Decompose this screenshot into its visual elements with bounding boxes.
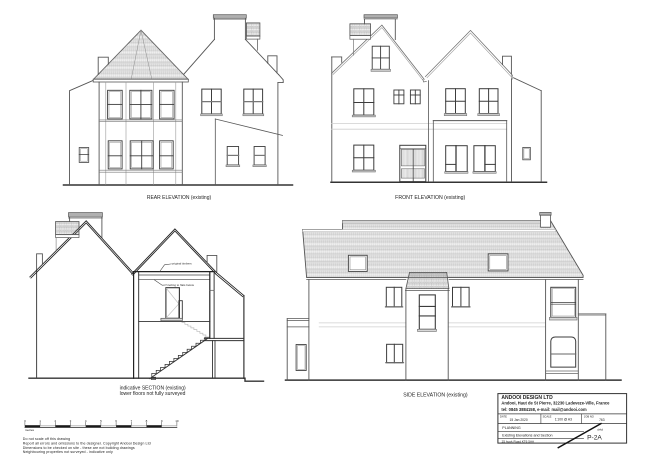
svg-text:P-2A: P-2A	[587, 435, 602, 442]
svg-text:chkd: chkd	[597, 427, 603, 431]
svg-text:Dimensions to be checked on si: Dimensions to be checked on site - these…	[23, 446, 135, 450]
svg-text:25 hook Road KT6 5AA: 25 hook Road KT6 5AA	[502, 439, 535, 443]
svg-text:original timbers: original timbers	[172, 262, 192, 266]
svg-text:Do not scale off this drawing: Do not scale off this drawing	[23, 437, 70, 441]
svg-text:Existing Elevations and Sectio: Existing Elevations and Section	[502, 433, 552, 437]
svg-text:ceiling to flats below: ceiling to flats below	[168, 283, 195, 287]
svg-text:metres: metres	[25, 428, 35, 432]
svg-text:DATE: DATE	[500, 415, 507, 419]
svg-text:lower floors not fully surveye: lower floors not fully surveyed	[120, 391, 186, 397]
svg-text:15 Jan 2020: 15 Jan 2020	[510, 418, 528, 422]
svg-text:SCALE: SCALE	[543, 415, 552, 419]
svg-text:Report all errors and omission: Report all errors and omissions to the d…	[23, 441, 151, 445]
svg-text:SIDE ELEVATION (existing): SIDE ELEVATION (existing)	[403, 392, 468, 398]
svg-text:Andooi, Haut de St Pierre, 322: Andooi, Haut de St Pierre, 32230 Ladevez…	[501, 400, 610, 405]
svg-text:763: 763	[599, 418, 605, 422]
svg-text:1:100 @ A3: 1:100 @ A3	[555, 418, 572, 422]
svg-text:FRONT ELEVATION (existing): FRONT ELEVATION (existing)	[395, 195, 465, 201]
svg-text:REAR ELEVATION (existing): REAR ELEVATION (existing)	[147, 195, 212, 201]
svg-text:PLANNING: PLANNING	[502, 426, 521, 430]
svg-text:JOB NO: JOB NO	[584, 415, 594, 419]
svg-text:Neighbouring properties not su: Neighbouring properties not surveyed - i…	[23, 450, 113, 454]
svg-text:10: 10	[175, 419, 179, 423]
svg-text:tel: 0845 3884158, e-mail: mai: tel: 0845 3884158, e-mail: mail@andooi.c…	[501, 407, 587, 412]
